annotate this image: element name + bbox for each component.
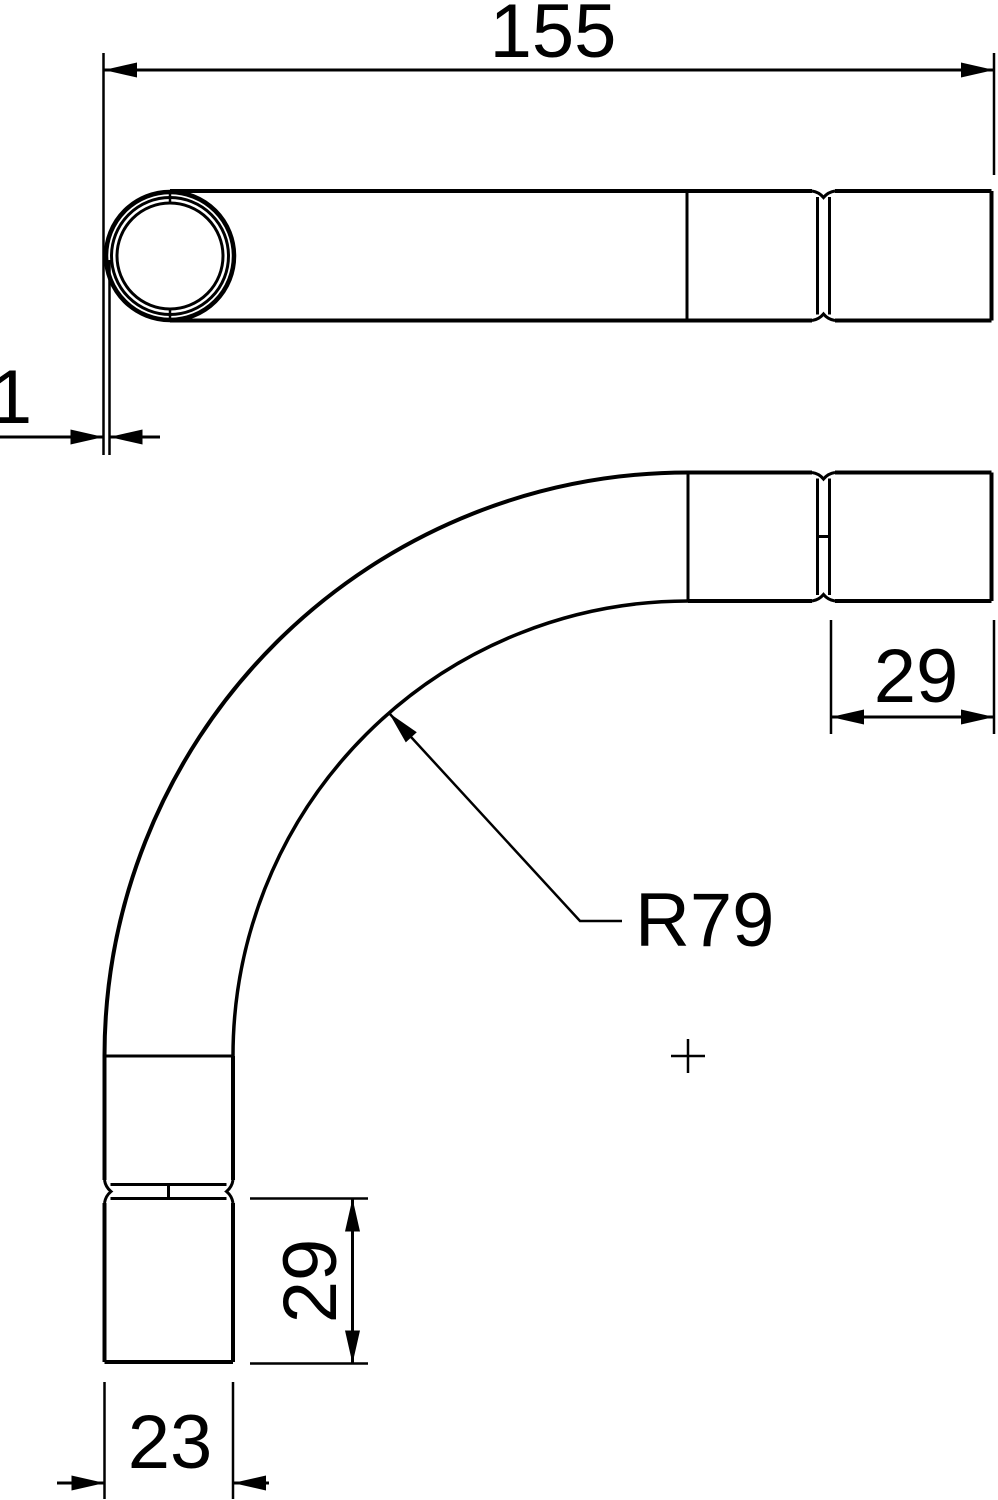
dim-29r-label: 29	[874, 634, 959, 719]
dim-23-arrow-left	[72, 1476, 105, 1491]
bend-vert-groove-notch-left	[105, 1180, 112, 1203]
bend-horiz-groove-notch-bottom	[812, 595, 835, 602]
bend-outer-arc	[105, 473, 689, 1057]
bend-horiz-groove-notch-top	[812, 473, 835, 480]
pipe-top-groove-notch	[812, 191, 835, 198]
dim-socket-right: 29	[831, 620, 994, 734]
dim-29b-arrow-top	[345, 1199, 360, 1232]
dim-23-arrow-right	[233, 1476, 266, 1491]
dim-overall-length: 155	[104, 0, 995, 455]
technical-drawing-page: 155 1	[0, 0, 998, 1500]
dim-155-label: 155	[490, 0, 617, 74]
dim-29b-label: 29	[268, 1239, 353, 1324]
dim-1-arrow-right	[110, 430, 143, 445]
dim-29b-arrow-bottom	[345, 1331, 360, 1364]
top-view	[106, 191, 992, 321]
radius-leader-line	[389, 713, 622, 921]
pipe-bottom-groove-notch	[812, 314, 835, 321]
pipe-middle-circle	[112, 198, 229, 315]
dim-1-label: 1	[0, 355, 32, 440]
dim-155-arrow-right	[961, 63, 994, 78]
dim-155-arrow-left	[104, 63, 137, 78]
dim-1-arrow-left	[71, 430, 104, 445]
dim-outer-diameter: 23	[57, 1382, 269, 1499]
bend-vert-groove-notch-right	[227, 1180, 234, 1203]
dim-29r-arrow-left	[831, 710, 864, 725]
conduit-bend-drawing: 155 1	[0, 0, 998, 1500]
dim-29r-arrow-right	[961, 710, 994, 725]
pipe-outer-circle	[106, 192, 234, 320]
dim-wall-thickness: 1	[0, 260, 160, 455]
radius-label: R79	[635, 878, 774, 963]
dim-23-label: 23	[128, 1400, 213, 1485]
bend-inner-arc	[233, 601, 688, 1056]
bend-view	[105, 473, 992, 1363]
radius-callout: R79	[389, 713, 774, 963]
pipe-inner-circle	[117, 203, 223, 309]
dim-socket-bottom: 29	[250, 1199, 368, 1364]
